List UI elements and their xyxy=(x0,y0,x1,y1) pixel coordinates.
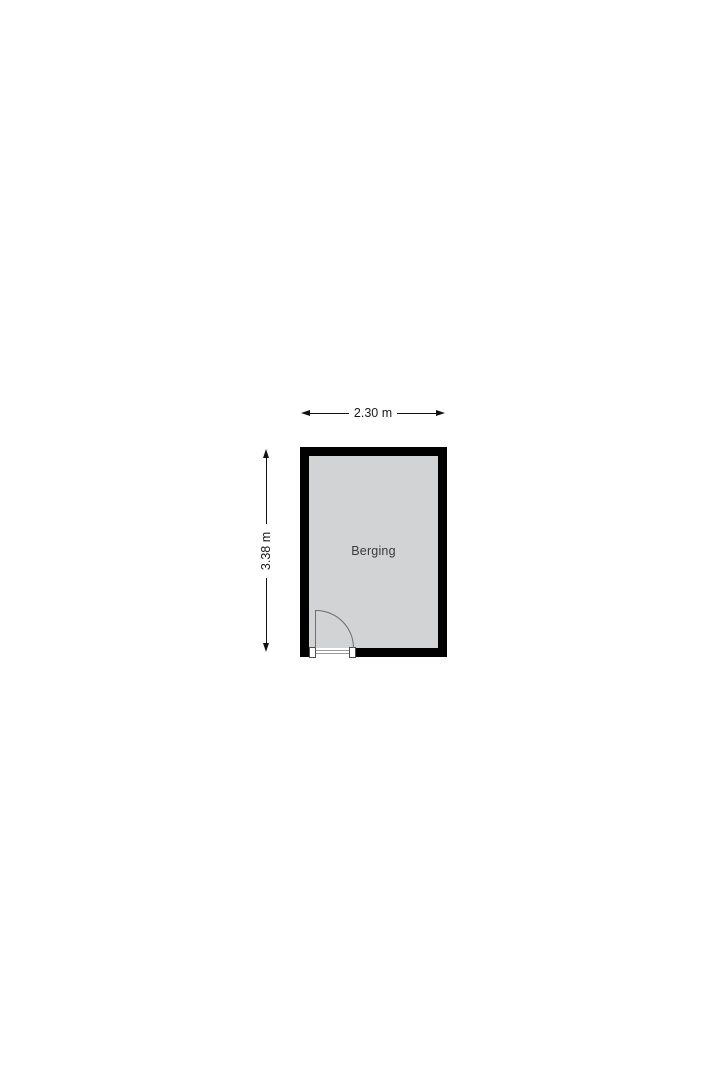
arrow-right-icon xyxy=(436,410,445,416)
arrow-up-icon xyxy=(263,449,269,458)
dimension-line xyxy=(266,458,267,524)
width-dimension-label: 2.30 m xyxy=(349,405,397,421)
dimension-line xyxy=(266,578,267,644)
width-dimension: 2.30 m xyxy=(301,405,445,421)
floorplan-canvas: 2.30 m 3.38 m Berging xyxy=(0,0,711,1067)
door-jamb-right xyxy=(349,647,356,658)
dimension-line xyxy=(310,413,349,414)
height-dimension: 3.38 m xyxy=(258,449,274,652)
height-dimension-label: 3.38 m xyxy=(258,524,274,578)
arrow-down-icon xyxy=(263,643,269,652)
dimension-line xyxy=(397,413,436,414)
arrow-left-icon xyxy=(301,410,310,416)
room-label: Berging xyxy=(351,544,396,560)
door-jamb-left xyxy=(309,647,316,658)
